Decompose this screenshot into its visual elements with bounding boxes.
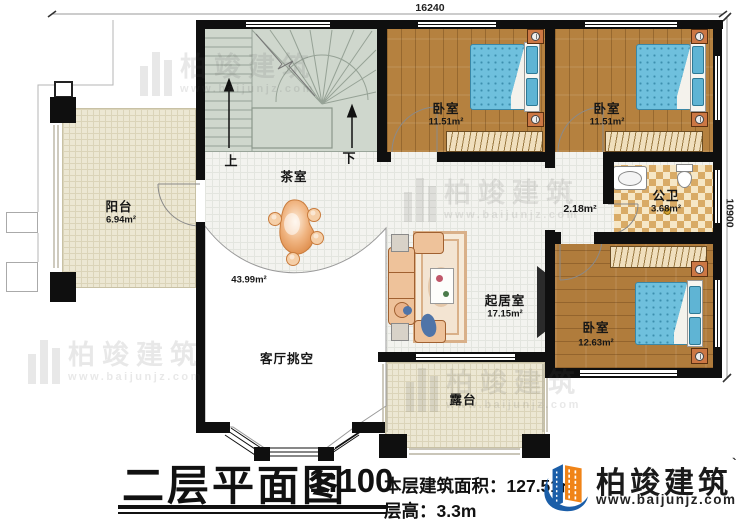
room-label-bedroom2: 卧室: [593, 103, 620, 116]
room-area-bedroom2: 11.51m²: [590, 117, 625, 127]
stair-up-label: 上: [224, 155, 237, 168]
sink-icon: [613, 166, 647, 190]
side-table: [391, 323, 409, 341]
room-label-bathroom: 公卫: [652, 190, 679, 203]
nightstand: [691, 261, 708, 277]
pillow: [526, 46, 538, 74]
pillow: [692, 46, 704, 74]
room-area-balcony: 6.94m²: [106, 215, 136, 225]
terrace-column: [379, 434, 407, 458]
wall-segment: [594, 232, 713, 244]
watermark-url: www.baijunjz.com: [68, 371, 204, 383]
sink-basin: [618, 171, 642, 186]
wardrobe: [605, 131, 703, 152]
watermark-url: www.baijunjz.com: [444, 209, 580, 221]
room-label-living-room: 起居室: [485, 295, 526, 308]
wall-segment: [713, 20, 722, 56]
watermark-name: 柏竣建筑: [180, 53, 316, 83]
brand-url: www.baijunjz.com: [596, 492, 737, 507]
wall-segment: [545, 230, 555, 378]
ledge-outline: [6, 262, 38, 292]
wall-segment: [713, 120, 722, 170]
watermark-url: www.baijunjz.com: [446, 399, 582, 411]
watermark-name: 柏竣建筑: [68, 341, 204, 371]
bed: [636, 44, 691, 110]
flower-icon: [436, 275, 443, 282]
watermark-url: www.baijunjz.com: [180, 83, 316, 95]
wall-segment: [330, 20, 418, 29]
window: [713, 280, 722, 347]
window: [418, 20, 496, 29]
wall-segment: [377, 152, 391, 162]
wall-segment: [496, 20, 585, 29]
stair-down-label: 下: [342, 152, 355, 165]
watermark-building-icon: [140, 52, 172, 96]
lamp-icon: [695, 265, 704, 274]
lamp-icon: [695, 115, 704, 124]
lamp-icon: [695, 352, 704, 361]
watermark-building-icon: [406, 368, 438, 412]
bed-sheet: [674, 283, 687, 344]
side-table: [391, 234, 409, 252]
tea-table: [269, 200, 324, 266]
wall-segment: [603, 152, 614, 204]
pillow: [689, 286, 701, 314]
room-label-bedroom3: 卧室: [582, 322, 609, 335]
pillow: [692, 78, 704, 106]
nightstand: [691, 29, 708, 44]
plan-scale: 1:100: [309, 462, 393, 500]
watermark-name: 柏竣建筑: [446, 369, 582, 399]
window: [416, 352, 515, 362]
coffee-table: [430, 268, 454, 304]
pillow: [526, 78, 538, 106]
balcony-column: [50, 272, 76, 302]
decor-outline: [38, 20, 113, 262]
room-label-bedroom1: 卧室: [432, 103, 459, 116]
brand-mark: `: [732, 455, 737, 471]
wall-segment: [196, 422, 230, 433]
lamp-icon: [695, 32, 704, 41]
watermark-building-icon: [28, 340, 60, 384]
wall-segment: [603, 152, 713, 162]
wall-segment: [377, 29, 387, 152]
room-label-void: 客厅挑空: [260, 353, 314, 366]
stair-landing: [252, 108, 332, 148]
wall-segment: [437, 152, 545, 162]
armchair: [413, 232, 444, 254]
window: [585, 20, 677, 29]
room-label-tea-room: 茶室: [280, 171, 307, 184]
wall-segment: [677, 368, 722, 378]
watermark: 柏竣建筑 www.baijunjz.com: [404, 178, 580, 222]
nightstand: [691, 348, 708, 364]
wall-segment: [713, 223, 722, 280]
wall-segment: [196, 222, 205, 425]
wall-segment: [196, 20, 205, 180]
title-underline: [118, 505, 386, 509]
balcony-column: [50, 97, 76, 123]
wall-segment: [555, 232, 561, 244]
bed-sheet: [677, 45, 690, 109]
room-label-balcony: 阳台: [105, 201, 132, 214]
title-underline-thin: [118, 512, 386, 514]
balcony-post-outline: [54, 81, 73, 98]
lamp-icon: [531, 32, 540, 41]
nightstand: [527, 29, 544, 44]
watermark: 柏竣建筑 www.baijunjz.com: [140, 52, 316, 96]
room-area-void: 43.99m²: [231, 275, 266, 285]
room-area-bedroom3: 12.63m²: [578, 338, 613, 348]
window: [713, 170, 722, 223]
wardrobe: [446, 131, 543, 152]
nightstand: [527, 112, 544, 127]
wall-segment: [515, 352, 545, 362]
watermark-building-icon: [404, 178, 436, 222]
window: [580, 368, 677, 378]
dimension-right: 10900: [724, 198, 735, 227]
dimension-top: 16240: [415, 3, 444, 14]
room-area-living-room: 17.15m²: [487, 309, 522, 319]
plant-icon: [443, 291, 449, 297]
wall-segment: [545, 29, 555, 168]
person-figure: [403, 306, 412, 315]
terrace-column: [522, 434, 550, 458]
ledge-outline: [6, 212, 38, 233]
wall-segment: [352, 422, 385, 433]
pillow: [689, 317, 701, 345]
lamp-icon: [531, 115, 540, 124]
brand-logo-icon: [538, 456, 592, 516]
bed: [635, 282, 688, 345]
watermark: 柏竣建筑 www.baijunjz.com: [28, 340, 204, 384]
floor-plan: 阳台 6.94m² 茶室 上 下 卧室 11.51m² 卧室 11.51m² 2…: [0, 0, 750, 524]
watermark-name: 柏竣建筑: [444, 179, 580, 209]
wall-segment: [378, 352, 416, 362]
room-area-bathroom: 3.68m²: [651, 204, 681, 214]
window: [246, 20, 330, 29]
bed: [470, 44, 525, 110]
bed-sheet: [511, 45, 524, 109]
floor-height-text: 层高：3.3m: [384, 498, 476, 523]
window: [713, 56, 722, 120]
room-area-bedroom1: 11.51m²: [429, 117, 464, 127]
watermark: 柏竣建筑 www.baijunjz.com: [406, 368, 582, 412]
nightstand: [691, 112, 708, 127]
